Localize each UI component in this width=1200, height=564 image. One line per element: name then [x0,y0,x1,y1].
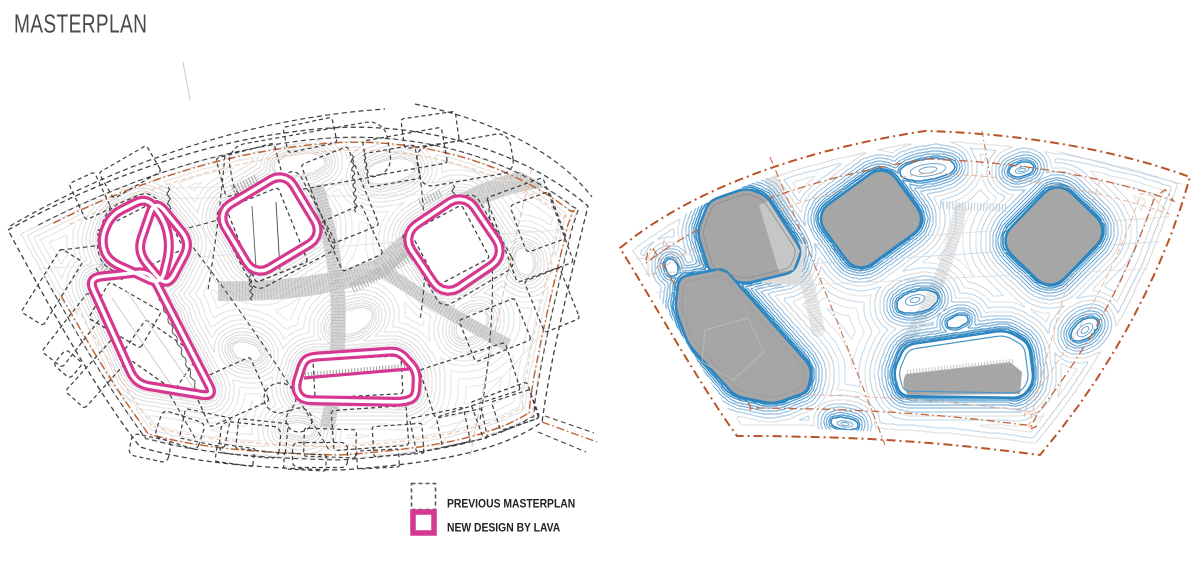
svg-text:NEW DESIGN BY LAVA: NEW DESIGN BY LAVA [447,522,560,535]
svg-text:PREVIOUS MASTERPLAN: PREVIOUS MASTERPLAN [447,498,575,511]
svg-text:MASTERPLAN: MASTERPLAN [14,10,147,38]
